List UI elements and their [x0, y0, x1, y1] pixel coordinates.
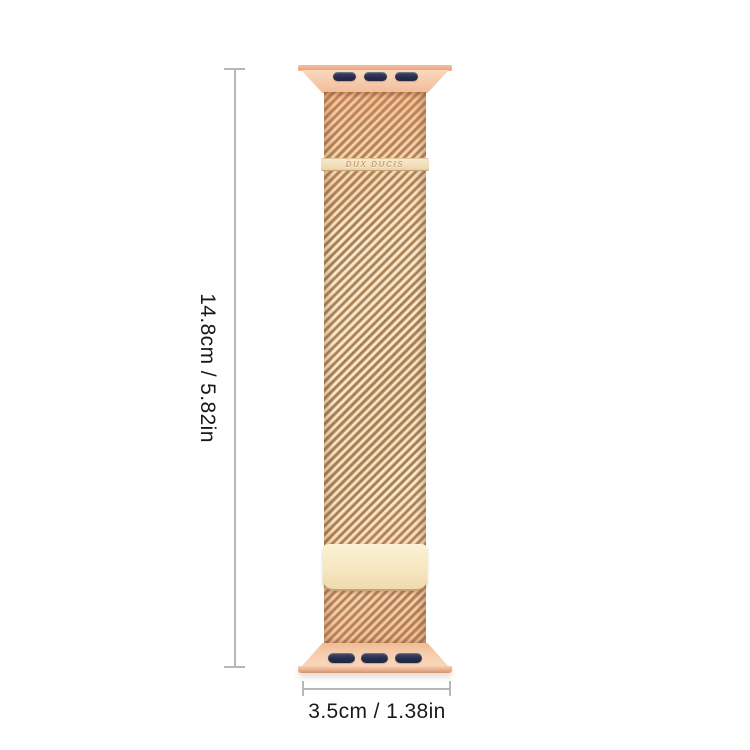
- height-dimension-cap-top: [224, 68, 245, 70]
- product-photo: DUX DUCIS 14.8cm / 5.82in 3.5cm / 1.38in: [0, 0, 750, 750]
- adapter-slot: [361, 653, 388, 663]
- brand-label: DUX DUCIS: [346, 161, 404, 169]
- height-dimension-cap-bottom: [224, 666, 245, 668]
- width-dimension-label: 3.5cm / 1.38in: [308, 700, 446, 724]
- height-dimension-line: [234, 68, 236, 668]
- width-dimension-cap-right: [449, 681, 451, 696]
- bottom-adapter-bar: [298, 666, 452, 673]
- magnetic-clasp-plate: [323, 544, 427, 591]
- width-dimension-line: [302, 688, 451, 690]
- adapter-slot: [395, 72, 418, 81]
- adapter-slot: [328, 653, 355, 663]
- height-dimension-label: 14.8cm / 5.82in: [195, 293, 219, 443]
- adapter-slot: [395, 653, 422, 663]
- brand-slider-buckle: DUX DUCIS: [321, 158, 429, 171]
- adapter-slot: [364, 72, 387, 81]
- width-dimension-cap-left: [302, 681, 304, 696]
- adapter-slot: [333, 72, 356, 81]
